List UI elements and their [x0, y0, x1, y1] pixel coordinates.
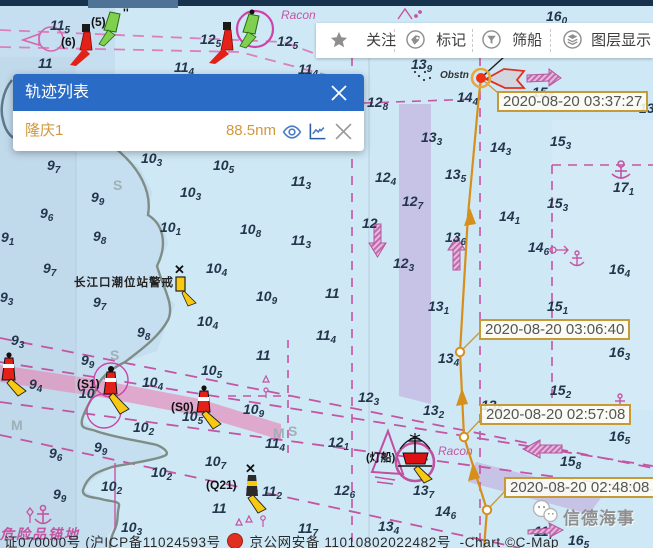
- svg-text:S: S: [110, 347, 119, 363]
- svg-text:S: S: [113, 177, 122, 193]
- svg-text:✕: ✕: [245, 461, 256, 476]
- svg-text:长江口潮位站警戒: 长江口潮位站警戒: [74, 275, 174, 289]
- svg-text:Racon: Racon: [281, 8, 316, 22]
- svg-text:'': '': [123, 6, 129, 20]
- svg-text:11: 11: [212, 500, 227, 516]
- svg-text:(Q21): (Q21): [206, 478, 237, 492]
- svg-text:(灯船): (灯船): [366, 450, 396, 464]
- svg-text:11: 11: [256, 347, 271, 363]
- svg-text:11: 11: [325, 285, 340, 301]
- svg-text:✕: ✕: [174, 262, 185, 277]
- svg-text:12: 12: [362, 215, 378, 231]
- svg-text:Obstn: Obstn: [440, 70, 469, 81]
- svg-text:(5): (5): [91, 15, 106, 29]
- svg-text:(6): (6): [61, 35, 76, 49]
- svg-text:M: M: [11, 417, 23, 433]
- svg-text:M: M: [273, 425, 285, 441]
- svg-text:11: 11: [38, 55, 53, 71]
- svg-text:(S0): (S0): [171, 400, 194, 414]
- svg-text:S: S: [288, 423, 297, 439]
